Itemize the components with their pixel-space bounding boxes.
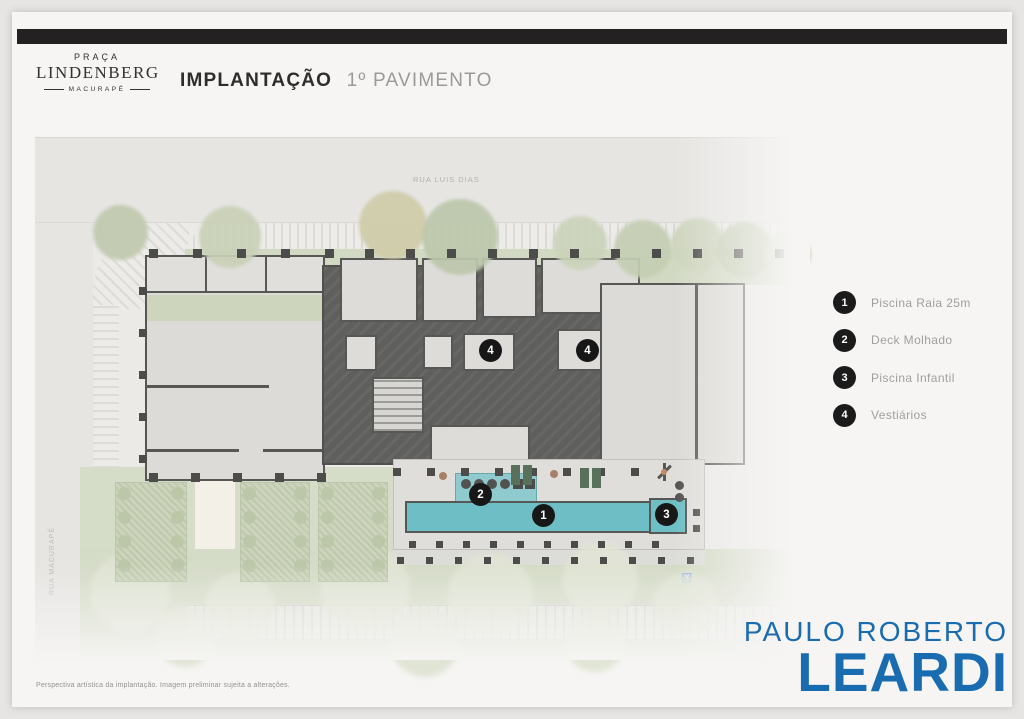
bush — [118, 535, 131, 548]
deck-dot — [693, 509, 700, 516]
column — [495, 468, 503, 476]
bush — [372, 511, 385, 524]
column — [191, 473, 200, 482]
column — [734, 249, 743, 258]
column — [139, 413, 147, 421]
tree — [553, 216, 607, 270]
pergola-post — [571, 557, 578, 564]
stairs — [372, 377, 424, 433]
pergola-post — [455, 557, 462, 564]
building-room — [345, 335, 377, 371]
bush — [294, 487, 307, 500]
planter — [511, 465, 520, 485]
pergola-post — [571, 541, 578, 548]
column — [139, 287, 147, 295]
brand-line3-text: MACURAPÉ — [69, 86, 126, 93]
column — [237, 249, 246, 258]
lawn-tree — [565, 612, 625, 672]
bush — [243, 535, 256, 548]
page-title-main: IMPLANTAÇÃO — [180, 70, 332, 91]
bush — [118, 559, 131, 572]
column — [139, 455, 147, 463]
column — [447, 249, 456, 258]
bush — [243, 559, 256, 572]
page-title-sub: 1º PAVIMENTO — [347, 70, 493, 91]
tree — [765, 231, 811, 277]
column — [193, 249, 202, 258]
lawn-tree — [155, 607, 215, 667]
tree — [614, 220, 672, 278]
site-plan: RUA LUIS DIAS RUA MACURAPÉ ♿ 12344 — [35, 137, 810, 660]
bush — [243, 487, 256, 500]
plan-marker: 4 — [479, 339, 502, 362]
deck-dot — [675, 493, 684, 502]
pergola-post — [397, 557, 404, 564]
column — [461, 468, 469, 476]
pergola-post — [598, 541, 605, 548]
column — [139, 329, 147, 337]
plan-marker: 4 — [576, 339, 599, 362]
bush — [321, 559, 334, 572]
pergola-post — [600, 557, 607, 564]
legend-badge: 4 — [833, 404, 856, 427]
bush — [321, 535, 334, 548]
column — [775, 249, 784, 258]
building-room — [340, 258, 418, 322]
pergola-post — [484, 557, 491, 564]
column — [365, 249, 374, 258]
pergola-post — [490, 541, 497, 548]
bush — [171, 511, 184, 524]
lawn-tree — [653, 573, 718, 638]
bush — [294, 535, 307, 548]
pergola-post — [426, 557, 433, 564]
planter — [523, 465, 532, 485]
bush — [171, 535, 184, 548]
legend-badge: 1 — [833, 291, 856, 314]
column — [611, 249, 620, 258]
table-with-chairs — [655, 463, 673, 481]
bush — [171, 487, 184, 500]
bush — [372, 559, 385, 572]
building-room — [423, 335, 453, 369]
deck-dot — [675, 481, 684, 490]
column — [570, 249, 579, 258]
bush — [321, 487, 334, 500]
plan-marker: 3 — [655, 503, 678, 526]
column — [427, 468, 435, 476]
column — [233, 473, 242, 482]
disclaimer-text: Perspectiva artística da implantação. Im… — [36, 682, 290, 689]
column — [631, 468, 639, 476]
bush — [294, 511, 307, 524]
column — [529, 249, 538, 258]
column — [149, 249, 158, 258]
building-right-wing — [600, 283, 745, 465]
page-title: IMPLANTAÇÃO 1º PAVIMENTO — [180, 70, 493, 92]
plan-marker: 2 — [469, 483, 492, 506]
plant-pot — [439, 472, 447, 480]
column — [652, 249, 661, 258]
tree — [199, 206, 261, 268]
bush — [294, 559, 307, 572]
pergola-post — [513, 557, 520, 564]
column — [281, 249, 290, 258]
pergola-post — [436, 541, 443, 548]
brand-line1: PRAÇA — [36, 52, 158, 62]
column — [317, 473, 326, 482]
bush — [171, 559, 184, 572]
column — [563, 468, 571, 476]
column — [149, 473, 158, 482]
legend-label: Deck Molhado — [871, 333, 953, 347]
pergola-post — [463, 541, 470, 548]
column — [393, 468, 401, 476]
legend-item: 2Deck Molhado — [833, 329, 971, 352]
brand-logo: PRAÇA LINDENBERG MACURAPÉ — [36, 52, 158, 93]
legend-item: 1Piscina Raia 25m — [833, 291, 971, 314]
legend-badge: 3 — [833, 366, 856, 389]
column — [693, 249, 702, 258]
legend-label: Vestiários — [871, 408, 927, 422]
street-left-label: RUA MACURAPÉ — [49, 527, 56, 595]
tree — [93, 205, 148, 260]
building-left-wing — [145, 255, 325, 481]
lawn-tree — [205, 572, 275, 642]
building-room — [482, 258, 537, 318]
leardi-logo: PAULO ROBERTO LEARDI — [744, 616, 1008, 696]
planter — [580, 468, 589, 488]
column — [275, 473, 284, 482]
column — [488, 249, 497, 258]
pergola-post — [409, 541, 416, 548]
legend-badge: 2 — [833, 329, 856, 352]
pergola-post — [544, 541, 551, 548]
legend-label: Piscina Infantil — [871, 371, 955, 385]
legend-item: 3Piscina Infantil — [833, 366, 971, 389]
pergola-post — [658, 557, 665, 564]
lawn-tree — [563, 542, 638, 617]
legend: 1Piscina Raia 25m2Deck Molhado3Piscina I… — [833, 291, 971, 441]
bush — [372, 487, 385, 500]
lawn-tree — [448, 553, 533, 638]
bush — [321, 511, 334, 524]
plan-marker: 1 — [532, 504, 555, 527]
bush — [372, 535, 385, 548]
deck-dot — [693, 525, 700, 532]
bush — [243, 511, 256, 524]
brand-line2: LINDENBERG — [36, 63, 158, 83]
lounger — [500, 479, 510, 489]
column — [139, 371, 147, 379]
legend-label: Piscina Raia 25m — [871, 296, 971, 310]
column — [325, 249, 334, 258]
street-top-label: RUA LUIS DIAS — [413, 175, 480, 184]
lawn-tree — [390, 607, 460, 677]
tree — [422, 199, 498, 275]
pergola-post — [687, 557, 694, 564]
building-green-strip — [147, 295, 323, 321]
lounger — [461, 479, 471, 489]
planter — [592, 468, 601, 488]
brand-line3: MACURAPÉ — [36, 86, 158, 93]
pergola-post — [625, 541, 632, 548]
bush — [118, 511, 131, 524]
legend-item: 4Vestiários — [833, 404, 971, 427]
brand-rule-left — [44, 89, 64, 90]
pergola-post — [517, 541, 524, 548]
top-black-bar — [17, 29, 1007, 44]
brand-rule-right — [130, 89, 150, 90]
pergola-post — [652, 541, 659, 548]
pergola-post — [629, 557, 636, 564]
leardi-logo-line2: LEARDI — [744, 648, 1008, 696]
plant-pot — [550, 470, 558, 478]
bush — [118, 487, 131, 500]
pergola-post — [542, 557, 549, 564]
column — [406, 249, 415, 258]
